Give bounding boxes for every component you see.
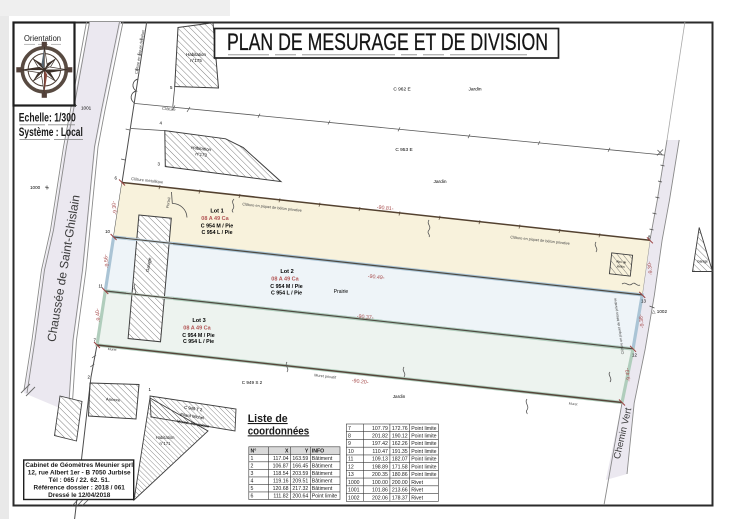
svg-text:Bâtiment: Bâtiment (312, 471, 333, 477)
svg-text:13: 13 (348, 472, 354, 478)
svg-text:200.35: 200.35 (372, 472, 388, 478)
svg-text:Cabinet de Géomètres Meunier s: Cabinet de Géomètres Meunier sprl (25, 462, 133, 469)
svg-text:Liste de: Liste de (248, 413, 288, 425)
svg-text:Bâtiment: Bâtiment (312, 479, 333, 485)
svg-text:Jardin: Jardin (468, 87, 481, 93)
svg-text:106.87: 106.87 (273, 464, 289, 470)
svg-text:109.13: 109.13 (372, 457, 388, 463)
svg-text:10: 10 (105, 229, 110, 234)
svg-text:C 954 L / Pie: C 954 L / Pie (271, 291, 302, 297)
svg-text:1: 1 (251, 456, 254, 462)
svg-text:4: 4 (251, 479, 254, 485)
svg-text:Bâtiment: Bâtiment (312, 464, 333, 470)
svg-text:172.76: 172.76 (392, 426, 408, 432)
svg-text:Orientation: Orientation (24, 33, 61, 43)
svg-text:3: 3 (251, 471, 254, 477)
svg-text:202.06: 202.06 (372, 495, 388, 501)
svg-text:C 953 E: C 953 E (395, 147, 412, 153)
svg-text:110.47: 110.47 (372, 449, 388, 455)
svg-text:Jardin: Jardin (393, 394, 406, 399)
svg-text:Rivet: Rivet (411, 488, 423, 494)
svg-text:Lot 1: Lot 1 (210, 209, 223, 215)
svg-text:180.86: 180.86 (392, 472, 408, 478)
svg-text:Point limite: Point limite (411, 426, 436, 432)
svg-text:Rivet: Rivet (411, 480, 423, 486)
svg-text:Système : Local: Système : Local (19, 125, 83, 139)
svg-text:08 A 49 Ca: 08 A 49 Ca (201, 216, 229, 222)
svg-text:191.35: 191.35 (392, 449, 408, 455)
svg-text:Point limite: Point limite (411, 449, 436, 455)
svg-text:2: 2 (251, 464, 254, 470)
svg-text:08 A 49 Ca: 08 A 49 Ca (183, 326, 211, 332)
svg-text:C 954 M / Pie: C 954 M / Pie (182, 333, 214, 339)
svg-text:118.54: 118.54 (273, 471, 289, 477)
svg-text:C 954 M / Pie: C 954 M / Pie (270, 284, 302, 290)
svg-text:198.89: 198.89 (372, 464, 388, 470)
svg-text:INFO: INFO (312, 449, 324, 455)
svg-text:Echelle: 1/300: Echelle: 1/300 (19, 110, 76, 124)
svg-text:Garage: Garage (697, 260, 708, 264)
svg-text:Lot 2: Lot 2 (280, 269, 293, 275)
svg-text:C 954 L / Pie: C 954 L / Pie (183, 339, 214, 345)
svg-text:Point limite: Point limite (411, 457, 436, 463)
svg-text:12: 12 (632, 353, 637, 358)
svg-text:C 949 S 2: C 949 S 2 (242, 380, 263, 385)
svg-text:PLAN DE MESURAGE ET DE DIVISIO: PLAN DE MESURAGE ET DE DIVISION (227, 29, 548, 56)
svg-text:N°: N° (251, 449, 257, 455)
svg-text:C 954 L / Pie: C 954 L / Pie (201, 230, 232, 236)
svg-text:Bâtiment: Bâtiment (312, 486, 333, 492)
svg-text:Point limite: Point limite (411, 464, 436, 470)
svg-text:162.26: 162.26 (392, 441, 408, 447)
svg-text:1001: 1001 (348, 488, 360, 494)
svg-text:C 962 E: C 962 E (393, 87, 410, 93)
svg-text:217.32: 217.32 (292, 486, 308, 492)
svg-text:200.64: 200.64 (292, 494, 308, 500)
svg-text:Annexe: Annexe (106, 397, 121, 403)
svg-text:163.59: 163.59 (292, 456, 308, 462)
svg-text:1002: 1002 (348, 495, 360, 501)
svg-text:Prairie: Prairie (334, 289, 349, 295)
svg-text:Habitation: Habitation (186, 52, 206, 57)
svg-text:Référence dossier : 2018 / 061: Référence dossier : 2018 / 061 (34, 485, 126, 492)
svg-text:n°175: n°175 (190, 58, 202, 63)
svg-text:190.12: 190.12 (392, 434, 408, 440)
svg-text:1000: 1000 (30, 185, 41, 190)
svg-text:C 954 M / Pie: C 954 M / Pie (201, 224, 233, 230)
svg-text:201.82: 201.82 (372, 434, 388, 440)
svg-text:101.86: 101.86 (372, 488, 388, 494)
svg-text:11: 11 (348, 457, 353, 463)
svg-text:Point limite: Point limite (411, 434, 436, 440)
svg-text:△ 1002: △ 1002 (652, 309, 667, 314)
svg-text:Jardin: Jardin (433, 179, 446, 185)
svg-text:08 A 49 Ca: 08 A 49 Ca (271, 277, 299, 283)
svg-text:200.00: 200.00 (392, 480, 408, 486)
svg-text:Lot 3: Lot 3 (192, 318, 205, 324)
svg-text:5: 5 (251, 486, 254, 492)
svg-text:Habitation: Habitation (156, 435, 176, 440)
svg-text:coordonnées: coordonnées (248, 425, 310, 437)
svg-text:Tél : 065 / 22. 62. 51.: Tél : 065 / 22. 62. 51. (49, 477, 110, 484)
svg-text:11: 11 (98, 284, 103, 289)
svg-text:100.00: 100.00 (372, 480, 388, 486)
svg-text:117.04: 117.04 (273, 456, 289, 462)
svg-text:1000: 1000 (348, 480, 360, 486)
svg-text:Point limite: Point limite (312, 494, 337, 500)
svg-text:X: X (285, 449, 289, 455)
svg-text:213.66: 213.66 (392, 488, 408, 494)
svg-text:166.45: 166.45 (292, 464, 308, 470)
svg-text:182.07: 182.07 (392, 457, 408, 463)
svg-text:1001: 1001 (81, 106, 92, 111)
svg-text:178.37: 178.37 (392, 495, 408, 501)
svg-text:Bâtiment: Bâtiment (312, 456, 333, 462)
svg-text:120.68: 120.68 (273, 486, 289, 492)
svg-text:9: 9 (348, 441, 351, 447)
svg-text:7: 7 (348, 426, 351, 432)
svg-text:Dressé le 12/04/2018: Dressé le 12/04/2018 (48, 492, 111, 499)
svg-text:Point limite: Point limite (411, 472, 436, 478)
svg-text:107.79: 107.79 (372, 426, 388, 432)
svg-text:Y: Y (305, 449, 309, 455)
svg-text:209.51: 209.51 (292, 479, 308, 485)
svg-text:171.58: 171.58 (392, 464, 408, 470)
svg-text:6: 6 (251, 494, 254, 500)
svg-text:n°171: n°171 (160, 441, 172, 446)
svg-text:119.16: 119.16 (273, 479, 289, 485)
svg-text:203.59: 203.59 (292, 471, 308, 477)
svg-text:197.42: 197.42 (372, 441, 388, 447)
svg-text:13: 13 (641, 299, 646, 304)
svg-text:12: 12 (348, 464, 354, 470)
svg-text:8: 8 (348, 434, 351, 440)
svg-text:10: 10 (348, 449, 354, 455)
svg-text:12, rue Albert 1er - B 7050 Ju: 12, rue Albert 1er - B 7050 Jurbise (28, 470, 131, 477)
svg-text:111.82: 111.82 (273, 494, 288, 500)
svg-text:Point limite: Point limite (411, 441, 436, 447)
svg-text:Rivet: Rivet (411, 495, 423, 501)
